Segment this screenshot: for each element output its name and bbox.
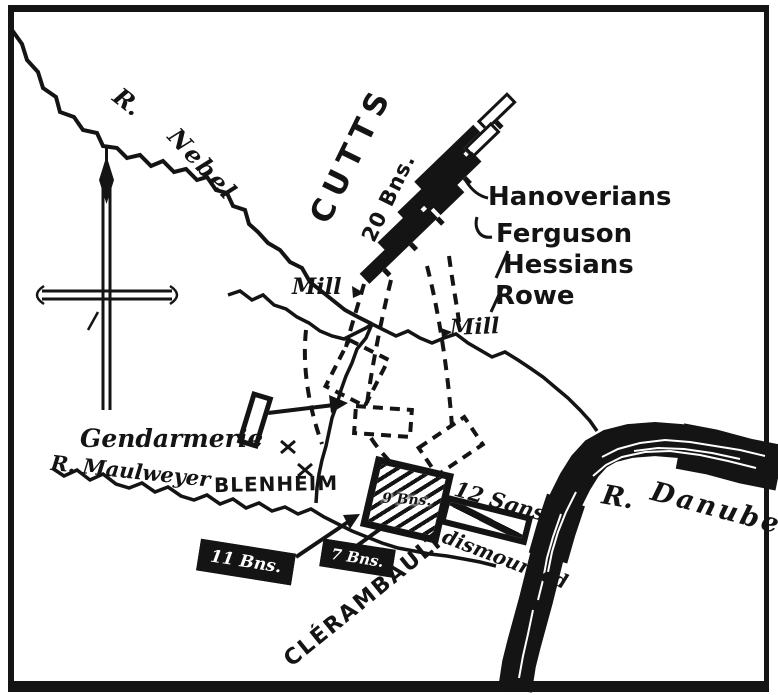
mill-east-label: Mill: [450, 315, 500, 339]
mill-west-label: Mill: [292, 276, 341, 298]
blenheim-garrison-label: 9 Bns.: [382, 491, 432, 510]
brigade-label-ferguson: Ferguson: [496, 221, 632, 247]
brigade-label-rowe: Rowe: [495, 283, 575, 309]
blenheim-place-label: BLENHEIM: [214, 473, 338, 495]
brigade-label-hanoverians: Hanoverians: [488, 184, 672, 210]
danube-river-abbr: R.: [600, 481, 636, 513]
gendarmerie-label: Gendarmerie: [80, 426, 263, 451]
brigade-label-hessians: Hessians: [503, 252, 634, 278]
